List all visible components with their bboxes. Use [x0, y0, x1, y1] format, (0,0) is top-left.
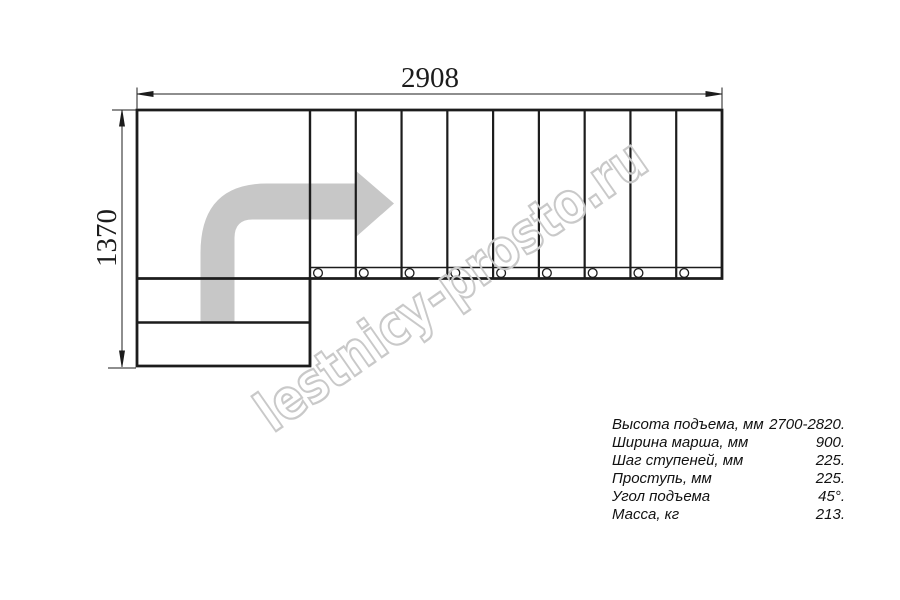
dimension-width: 2908 [137, 62, 722, 109]
dim-arrow-up-icon [120, 111, 125, 126]
spec-row: Шаг ступеней, мм225. [612, 452, 845, 470]
stair-plan-page: 2908 1370 lestnicy-prosto.ru Высота подъ… [0, 0, 900, 600]
spec-row: Высота подъема, мм2700-2820. [612, 416, 845, 434]
bolt-circle-icon [680, 269, 689, 278]
spec-label: Угол подъема [612, 488, 710, 506]
spec-value: 213. [816, 506, 845, 524]
spec-row: Проступь, мм225. [612, 470, 845, 488]
dim-arrow-right-icon [706, 92, 721, 97]
dimension-width-label: 2908 [401, 62, 459, 94]
spec-value: 225. [816, 452, 845, 470]
dimension-depth-label: 1370 [91, 209, 123, 267]
dim-arrow-left-icon [138, 92, 153, 97]
spec-value: 225. [816, 470, 845, 488]
direction-arrow-icon [201, 170, 395, 323]
spec-label: Масса, кг [612, 506, 679, 524]
spec-row: Ширина марша, мм900. [612, 434, 845, 452]
spec-value: 45°. [818, 488, 845, 506]
spec-table: Высота подъема, мм2700-2820.Ширина марша… [612, 416, 845, 523]
watermark-text: lestnicy-prosto.ru [244, 127, 660, 445]
spec-label: Ширина марша, мм [612, 434, 748, 452]
bolt-circle-icon [588, 269, 597, 278]
spec-row: Масса, кг213. [612, 506, 845, 524]
spec-label: Шаг ступеней, мм [612, 452, 743, 470]
dimension-depth: 1370 [91, 110, 136, 368]
bolt-circle-icon [542, 269, 551, 278]
spec-value: 2700-2820. [769, 416, 845, 434]
spec-row: Угол подъема45°. [612, 488, 845, 506]
spec-label: Высота подъема, мм [612, 416, 764, 434]
bolt-circle-icon [314, 269, 323, 278]
spec-value: 900. [816, 434, 845, 452]
spec-label: Проступь, мм [612, 470, 712, 488]
dim-arrow-down-icon [120, 351, 125, 366]
bolt-circle-icon [634, 269, 643, 278]
bolt-circle-icon [359, 269, 368, 278]
